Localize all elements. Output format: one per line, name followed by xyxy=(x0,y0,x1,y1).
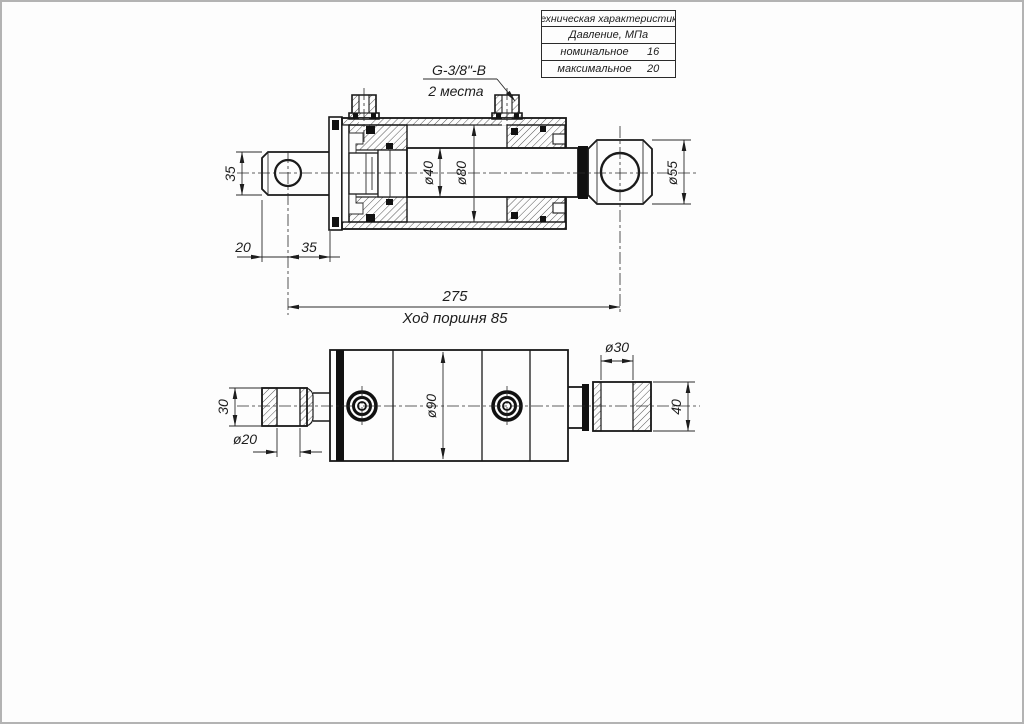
dim-plan-eye-bore: ø20 xyxy=(233,431,257,447)
dim-overall-length: 275 xyxy=(441,288,468,305)
dim-plan-head-eye-width: 40 xyxy=(668,399,684,415)
piston-seal xyxy=(386,143,393,149)
port-thread-label: G-3/8"-B xyxy=(432,62,486,78)
gland-seal xyxy=(540,126,546,132)
cylinder-drawing: G-3/8"-B 2 места 35 20 35 ø40 ø80 ø55 27… xyxy=(0,0,1024,724)
bottom-plan-view: 30 ø20 ø90 ø30 40 xyxy=(215,339,700,461)
gland-seal xyxy=(511,212,518,219)
drawing-sheet: G-3/8"-B 2 места 35 20 35 ø40 ø80 ø55 27… xyxy=(0,0,1024,724)
rod-wiper-band xyxy=(578,146,588,199)
row-value: 16 xyxy=(647,46,675,58)
plan-flange-band xyxy=(336,350,344,461)
piston-seal xyxy=(366,126,375,134)
gland-seal xyxy=(511,128,518,135)
table-subtitle: Давление, МПа xyxy=(542,26,675,43)
gland-seal xyxy=(540,216,546,222)
row-label: максимальное xyxy=(542,63,647,75)
table-title: Техническая характеристика xyxy=(542,11,675,26)
dim-eye-offset: 20 xyxy=(234,239,251,255)
row-value: 20 xyxy=(647,63,675,75)
dim-plan-body-diameter: ø90 xyxy=(423,394,439,418)
rod-eye-left xyxy=(262,152,330,195)
dim-eye-to-flange: 35 xyxy=(301,239,317,255)
port-places-label: 2 места xyxy=(427,83,483,99)
technical-characteristics-table: Техническая характеристика Давление, МПа… xyxy=(541,10,676,78)
dim-eye-height: 35 xyxy=(222,166,238,182)
dim-plan-head-eye-bore: ø30 xyxy=(605,339,629,355)
dim-plan-eye-width: 30 xyxy=(215,399,231,415)
dim-head-eye-diameter: ø55 xyxy=(664,161,680,185)
piston-seal xyxy=(366,214,375,222)
table-row: максимальное 20 xyxy=(542,60,675,77)
piston-seal xyxy=(386,199,393,205)
table-row: номинальное 16 xyxy=(542,43,675,60)
plan-wiper-band xyxy=(582,384,589,431)
dim-rod-diameter: ø40 xyxy=(420,161,436,185)
row-label: номинальное xyxy=(542,46,647,58)
plan-rod-eye-left xyxy=(262,388,330,426)
piston-assembly xyxy=(349,125,407,222)
stroke-label: Ход поршня 85 xyxy=(402,310,509,327)
main-section-view: G-3/8"-B 2 места 35 20 35 ø40 ø80 ø55 27… xyxy=(222,62,697,327)
plan-rod-eye-right xyxy=(568,382,651,431)
rear-flange xyxy=(329,117,342,230)
dim-bore-diameter: ø80 xyxy=(453,161,469,185)
end-cover-plate xyxy=(342,125,349,222)
